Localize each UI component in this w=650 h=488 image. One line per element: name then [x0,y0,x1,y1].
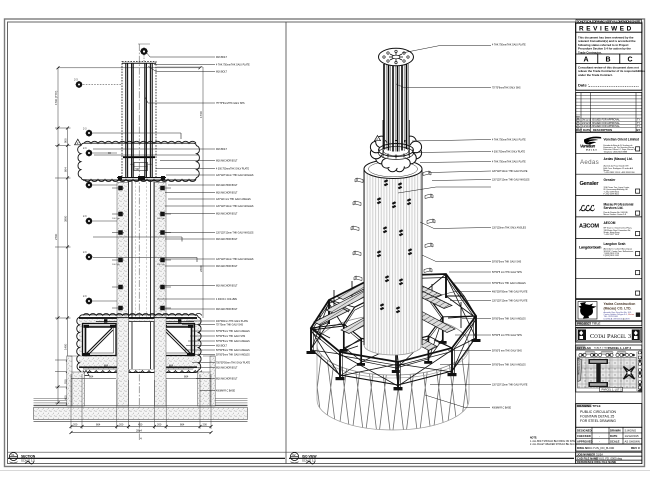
svg-text:T +853 2833 1113 F +853 2833: T +853 2833 1113 F +853 2833 1990 [604,172,635,174]
svg-text:3800: 3800 [64,215,68,222]
svg-text:1760: 1760 [199,111,203,118]
svg-text:NOTE:: NOTE: [530,438,537,440]
svg-text:under the Trade Contract.: under the Trade Contract. [578,73,613,77]
svg-text:M16 BOLT: M16 BOLT [216,57,228,59]
svg-text:100 Typ: 100 Typ [157,218,166,220]
svg-text:Aedas (Macau) Ltd.: Aedas (Macau) Ltd. [604,157,633,161]
svg-text:900: 900 [64,138,68,143]
svg-text:50*50*5mm THK GALV ANGLES: 50*50*5mm THK GALV ANGLES [216,354,250,357]
svg-text:864: 864 [184,374,189,378]
svg-text:120*120mm THK GALV ANGLES: 120*120mm THK GALV ANGLES [492,227,526,230]
svg-text:120*120*12mm THK GALV ANGLES: 120*120*12mm THK GALV ANGLES [216,258,254,261]
svg-text:AƎCOM: AƎCOM [579,224,599,230]
svg-text:M16 ANCHOR BOLT: M16 ANCHOR BOLT [216,378,238,381]
svg-text:120*120*12mm THK GALV ANGLES: 120*120*12mm THK GALV ANGLES [216,174,254,177]
svg-text:400MM R.C BASE: 400MM R.C BASE [216,390,235,393]
svg-text:4 THK 750mmTHK GALV PLATE: 4 THK 750mmTHK GALV PLATE [216,64,250,67]
svg-text:M16 BOLT: M16 BOLT [216,149,228,151]
svg-text:DRAWING TITLE: DRAWING TITLE [577,404,601,408]
svg-text:DATE: DATE [583,128,591,132]
svg-text:REVIEWED: REVIEWED [579,26,634,33]
svg-text:4 THK 750mmTHK GALV PLATE: 4 THK 750mmTHK GALV PLATE [492,44,526,47]
svg-text:F (853) 2833 1532: F (853) 2833 1532 [604,255,620,257]
svg-text:500: 500 [136,168,141,171]
svg-text:Aedas: Aedas [580,159,599,166]
svg-text:02: 02 [292,453,296,457]
svg-text:4 300 750mmTHK GALV PLATE: 4 300 750mmTHK GALV PLATE [216,168,249,171]
svg-text:Yadea Construction: Yadea Construction [604,302,636,306]
svg-text:M16 ANCHOR BOLT: M16 ANCHOR BOLT [216,265,238,268]
svg-text:864: 864 [104,365,109,368]
svg-text:Macau Finance Centre 9-K: Macau Finance Centre 9-K [604,213,627,216]
svg-text:460*200*50mm THK GALV PLATE: 460*200*50mm THK GALV PLATE [492,291,528,294]
svg-text:Gensler: Gensler [580,181,600,187]
svg-text:864: 864 [169,365,174,368]
svg-text:DWG NO: DWG NO [577,446,590,450]
svg-text:400MM R.C BASE: 400MM R.C BASE [492,407,511,410]
svg-text:200: 200 [157,422,162,426]
svg-text:M16 ANCHOR BOLT: M16 ANCHOR BOLT [216,367,238,370]
svg-text:4 THK 750mmTHK GALV PLATE: 4 THK 750mmTHK GALV PLATE [492,161,526,164]
svg-text:50*50*5mm THK GALV ANGLES: 50*50*5mm THK GALV ANGLES [492,364,526,367]
svg-text:REV C: REV C [631,446,641,450]
svg-text:M16 ANCHOR BOLT: M16 ANCHOR BOLT [216,192,238,195]
svg-text:01: 01 [11,453,15,457]
svg-text:FOR STEEL DRAWING: FOR STEEL DRAWING [580,419,616,423]
svg-text:PARCEL 1, LOT 1: PARCEL 1, LOT 1 [577,355,580,375]
svg-text:120*120*12mm THK GALV PLATE: 120*120*12mm THK GALV PLATE [492,300,528,303]
svg-text:Services Ltd.: Services Ltd. [604,206,624,210]
svg-text:COTAI PARCEL 3: COTAI PARCEL 3 [590,333,631,340]
svg-text:ℒℒℒ: ℒℒℒ [579,204,596,213]
svg-text:120*120 mm THK GALV ANGLES: 120*120 mm THK GALV ANGLES [216,198,251,201]
svg-text:864: 864 [96,422,101,426]
svg-text:400*600mm THK GALV PLATE: 400*600mm THK GALV PLATE [216,320,248,323]
svg-text:3-YUS_FD_B-000: 3-YUS_FD_B-000 [590,446,615,450]
svg-text:M16 ANCHOR BOLT: M16 ANCHOR BOLT [216,213,238,216]
svg-text:2700: 2700 [54,233,58,240]
svg-text:KEY PLAN: KEY PLAN [577,346,591,350]
svg-text:1. ALL BOLT SHOULD BE FIXING O: 1. ALL BOLT SHOULD BE FIXING ON SITE. [530,440,576,443]
svg-text:120*120*12mm THK GALV ANGLES: 120*120*12mm THK GALV ANGLES [216,232,254,235]
svg-text:PUBLIC CIRCULATION: PUBLIC CIRCULATION [580,410,616,414]
svg-text:M16 BOLT: M16 BOLT [216,346,228,348]
svg-text:LICENCA: 0987/2015 ■ 2878: LICENCA: 0987/2015 ■ 2878 [604,317,631,320]
svg-text:BY: BY [637,128,641,132]
svg-text:4 THK 750mmTHK GALV PLATE: 4 THK 750mmTHK GALV PLATE [492,139,526,142]
svg-text:-: - [599,434,600,438]
svg-text:Venetian Orient Limited: Venetian Orient Limited [604,138,640,142]
svg-text:CHECKED: CHECKED [577,434,591,438]
svg-text:75*75*6mmTHK GALV SHS: 75*75*6mmTHK GALV SHS [492,87,521,90]
svg-text:700*50*50mm THK GALV PLATE: 700*50*50mm THK GALV PLATE [216,362,251,365]
svg-text:100 Typ: 100 Typ [157,264,166,266]
svg-text:(Macau) CO. LTD.: (Macau) CO. LTD. [604,306,632,310]
svg-text:T +852 2317 7000: T +852 2317 7000 [604,234,619,236]
svg-text:DATE: DATE [610,434,618,438]
svg-text:M16 ANCHOR BOLT: M16 ANCHOR BOLT [216,308,238,311]
svg-text:50*50*5mm THK GALV ANGLES: 50*50*5mm THK GALV ANGLES [216,330,250,333]
svg-text:50*50*5mm THK GALV ANGLES: 50*50*5mm THK GALV ANGLES [216,349,250,352]
svg-text:2864: 2864 [136,428,142,432]
svg-text:F +852 2599 8001: F +852 2599 8001 [604,194,619,196]
svg-text:14/12/2015: 14/12/2015 [625,434,639,438]
svg-text:PROJECT TITLE: PROJECT TITLE [577,322,600,326]
svg-text:JOB NUMBER: JOB NUMBER [577,452,595,456]
svg-text:REFERENCE DWG FILE NAME: REFERENCE DWG FILE NAME [577,460,616,464]
svg-text:2-3: 2-3 [74,78,78,82]
svg-text:50*50*5mm THK GALV ANGLES: 50*50*5mm THK GALV ANGLES [216,340,250,343]
svg-text:450: 450 [138,422,143,426]
svg-text:50*50*5 mm THK GALV SHS: 50*50*5 mm THK GALV SHS [492,350,522,353]
svg-text:200: 200 [73,422,78,426]
svg-text:120*120*12mm THK GALV ANGLES: 120*120*12mm THK GALV ANGLES [492,179,530,182]
svg-text:Gensler: Gensler [604,178,617,182]
svg-text:1400: 1400 [64,343,68,350]
svg-text:864: 864 [89,374,94,378]
svg-text:200: 200 [119,422,124,426]
svg-text:Venetian: Venetian [580,144,596,149]
svg-text:50*50*5 mm THK GALV SHS: 50*50*5 mm THK GALV SHS [492,271,522,274]
svg-text:M16 ANCHOR BOLT: M16 ANCHOR BOLT [216,184,238,187]
svg-text:Date :: Date : [578,83,589,88]
svg-text:50*50*5mm THK GALV ANGLES: 50*50*5mm THK GALV ANGLES [492,282,526,285]
svg-text:4 300 R.C COLUMN: 4 300 R.C COLUMN [216,299,237,301]
svg-text:SCALE: SCALE [610,440,620,444]
svg-text:31/5A: 31/5A [596,452,603,456]
svg-text:Langdon Seah: Langdon Seah [604,242,626,246]
svg-text:50*50*5mm THK GALV SHS: 50*50*5mm THK GALV SHS [216,335,246,338]
svg-text:200: 200 [203,422,208,426]
svg-text:864: 864 [180,422,185,426]
svg-text:REV: REV [576,128,582,132]
svg-text:50*50*5mm THK GALV ANGLES: 50*50*5mm THK GALV ANGLES [492,318,526,321]
svg-text:3-YUS_FD_0000.dwg: 3-YUS_FD_0000.dwg [596,456,623,460]
svg-text:C: C [628,57,633,64]
svg-text:MACAO: MACAO [586,149,598,152]
svg-text:100 Typ: 100 Typ [112,218,121,220]
svg-text:2. ALL FILLET WELDED SHOULD BE: 2. ALL FILLET WELDED SHOULD BE 3mm THK. [530,443,581,446]
svg-text:75*75*6mmTHK GALV SHS: 75*75*6mmTHK GALV SHS [216,102,245,105]
svg-text:4 300 750mmTHK GALV PLATE: 4 300 750mmTHK GALV PLATE [492,151,525,154]
svg-text:50*50*5 mm THK GALV SHS: 50*50*5 mm THK GALV SHS [492,334,522,337]
svg-text:M16 ANCHOR BOLT: M16 ANCHOR BOLT [216,285,238,288]
svg-text:DESIGNED: DESIGNED [577,428,592,432]
svg-text:AECOM: AECOM [604,221,616,225]
svg-text:120*120*12mm THK GALV PLATE: 120*120*12mm THK GALV PLATE [492,170,528,173]
svg-text:SCALE 1:7500: SCALE 1:7500 [594,347,609,350]
svg-text:M16 BOLT: M16 BOLT [216,72,228,74]
svg-text:50*50*5mm THK GALV SHS: 50*50*5mm THK GALV SHS [492,261,522,264]
svg-text:LangdonSeah: LangdonSeah [579,245,602,250]
svg-text:Telephone: (853) 8118 8888: Telephone: (853) 8118 8888 [604,151,628,153]
svg-text:PARCEL 1, LOT 5: PARCEL 1, LOT 5 [602,389,623,392]
svg-text:A: A [584,57,589,64]
svg-text:864: 864 [64,167,68,172]
svg-text:-: - [599,440,600,444]
svg-text:PARCEL 1, LOT 3: PARCEL 1, LOT 3 [608,346,631,350]
svg-text:DRAWN: DRAWN [610,428,621,432]
svg-text:M16 ANCHOR BOLT: M16 ANCHOR BOLT [216,238,238,241]
svg-text:120*120*12mm THK GALV ANGLES: 120*120*12mm THK GALV ANGLES [216,205,254,208]
svg-text:120*120*12mm THK GALV PLATE: 120*120*12mm THK GALV PLATE [492,384,528,387]
svg-text:75*75mm THK GALV SHS: 75*75mm THK GALV SHS [216,324,243,327]
svg-text:M16 ANCHOR BOLT: M16 ANCHOR BOLT [216,160,238,163]
svg-text:AS SHOWN: AS SHOWN [625,440,640,444]
svg-text:FOUNTAIN DETAIL 25: FOUNTAIN DETAIL 25 [580,414,614,418]
svg-text:100 Typ: 100 Typ [112,264,121,266]
svg-text:B: B [606,57,611,64]
svg-text:APPROVED: APPROVED [577,440,593,444]
svg-text:1760 (TYP): 1760 (TYP) [54,91,58,105]
svg-text:S.WONG: S.WONG [625,428,637,432]
svg-text:DESCRIPTION: DESCRIPTION [593,128,612,132]
